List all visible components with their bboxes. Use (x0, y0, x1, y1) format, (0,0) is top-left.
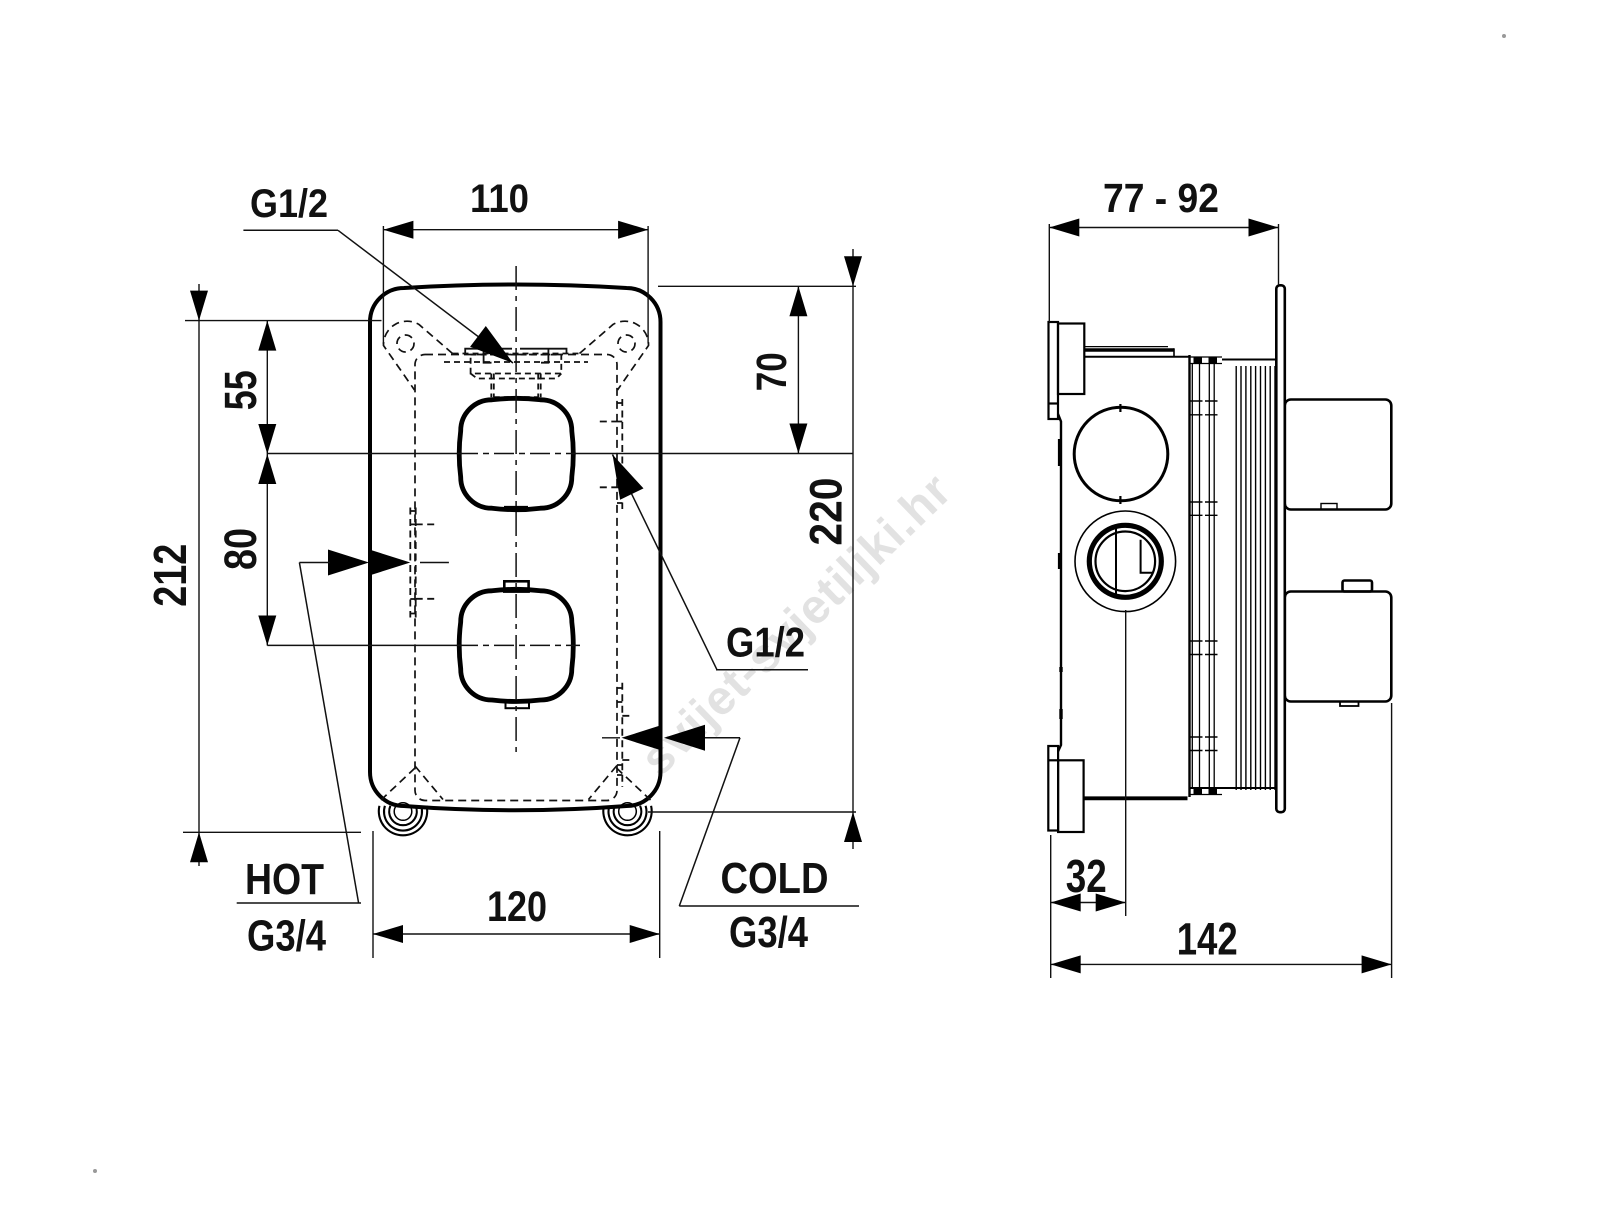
svg-text:COLD: COLD (721, 854, 829, 903)
svg-text:HOT: HOT (245, 855, 324, 904)
svg-text:55: 55 (215, 370, 266, 410)
svg-text:G1/2: G1/2 (726, 619, 805, 666)
svg-text:120: 120 (487, 883, 547, 931)
svg-text:212: 212 (144, 544, 196, 607)
svg-text:70: 70 (748, 352, 796, 391)
svg-text:32: 32 (1066, 850, 1107, 902)
svg-text:G1/2: G1/2 (250, 182, 328, 226)
svg-text:220: 220 (801, 478, 852, 546)
svg-text:G3/4: G3/4 (247, 912, 326, 961)
svg-text:77 - 92: 77 - 92 (1103, 175, 1219, 221)
svg-text:142: 142 (1177, 914, 1238, 965)
svg-text:G3/4: G3/4 (729, 908, 808, 957)
svg-text:110: 110 (470, 177, 529, 221)
svg-text:80: 80 (215, 528, 266, 570)
